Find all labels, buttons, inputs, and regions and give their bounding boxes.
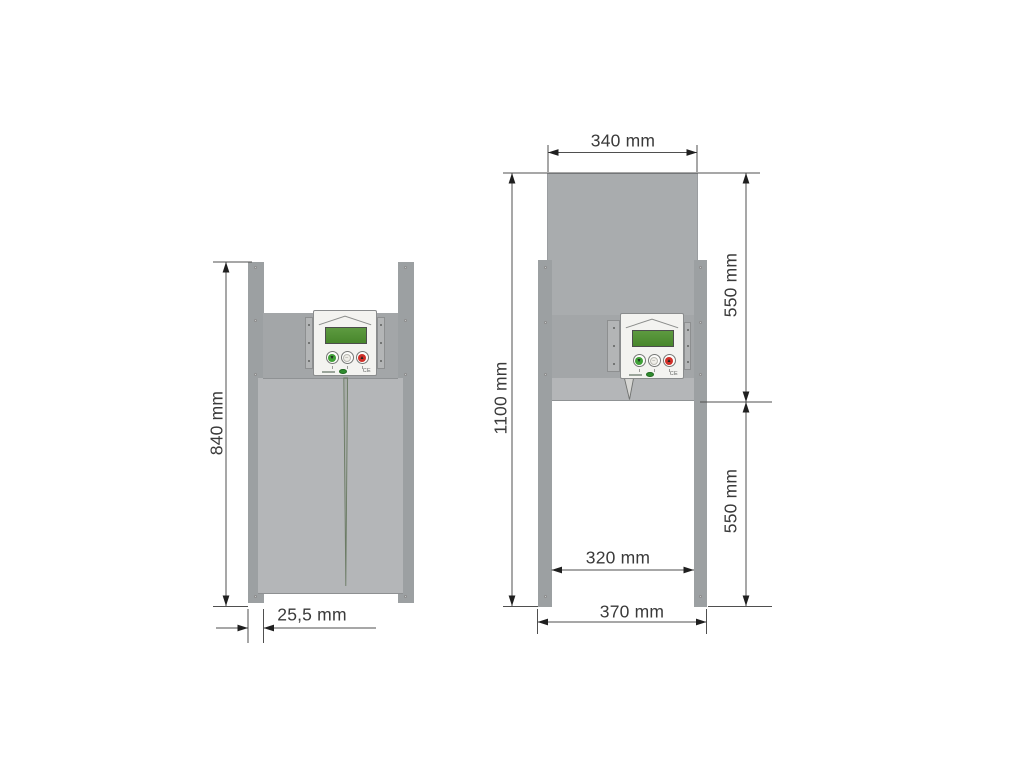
diagram-canvas: ▼ – ▲ CE <box>0 0 1024 768</box>
screw-icon <box>254 595 257 598</box>
brand-text <box>322 371 335 373</box>
ce-mark: CE <box>670 371 678 377</box>
door-bottom-edge <box>552 378 694 401</box>
button-down: ▼ <box>633 354 646 367</box>
door-panel-closed <box>258 378 403 594</box>
brand-text <box>629 374 642 376</box>
dim-label-rail-width: 25,5 mm <box>277 605 346 626</box>
screw-icon <box>699 373 702 376</box>
dim-label-outer-width: 370 mm <box>600 602 664 623</box>
button-stop: – <box>341 351 354 364</box>
screw-icon <box>544 321 547 324</box>
control-unit: ▼ – ▲ CE <box>607 313 691 379</box>
dim-label-upper-section: 550 mm <box>721 253 742 317</box>
up-arrow-icon: ▲ <box>359 355 364 360</box>
brand-logo-icon <box>339 369 347 375</box>
button-up: ▲ <box>356 351 369 364</box>
dim-label-opening-width: 320 mm <box>586 548 650 569</box>
screw-icon <box>699 321 702 324</box>
up-arrow-icon: ▲ <box>666 358 671 363</box>
guide-rail-left <box>538 260 552 607</box>
roof-outline-icon <box>314 313 376 327</box>
control-unit-face: ▼ – ▲ CE <box>313 310 377 376</box>
stop-icon: – <box>653 358 656 363</box>
guide-rail-right <box>694 260 708 607</box>
door-strap <box>0 0 1024 768</box>
dim-label-total-height: 1100 mm <box>491 361 512 434</box>
screw-icon <box>404 373 407 376</box>
screw-icon <box>404 319 407 322</box>
button-up: ▲ <box>663 354 676 367</box>
dimension-lines <box>0 0 1024 768</box>
dim-label-lower-section: 550 mm <box>721 469 742 533</box>
ce-mark: CE <box>363 368 371 374</box>
screw-icon <box>699 266 702 269</box>
button-stop: – <box>648 354 661 367</box>
screw-icon <box>404 266 407 269</box>
screw-icon <box>544 266 547 269</box>
brand-logo-icon <box>646 372 654 378</box>
mounting-flange-right <box>684 322 691 370</box>
screw-icon <box>404 595 407 598</box>
down-arrow-icon: ▼ <box>636 358 641 363</box>
dim-label-height-closed: 840 mm <box>207 391 228 455</box>
screw-icon <box>254 373 257 376</box>
dim-label-door-width: 340 mm <box>591 131 655 152</box>
screw-icon <box>254 266 257 269</box>
mounting-flange-right <box>377 317 385 369</box>
control-unit-face: ▼ – ▲ CE <box>620 313 684 379</box>
button-down: ▼ <box>326 351 339 364</box>
roof-outline-icon <box>621 316 683 330</box>
lcd-display <box>325 327 367 344</box>
mounting-flange-left <box>607 320 620 372</box>
lcd-display <box>632 330 674 347</box>
stop-icon: – <box>346 355 349 360</box>
screw-icon <box>254 319 257 322</box>
pull-cord <box>0 0 1024 768</box>
down-arrow-icon: ▼ <box>329 355 334 360</box>
control-unit: ▼ – ▲ CE <box>305 310 385 377</box>
mounting-flange-left <box>305 317 313 369</box>
screw-icon <box>544 373 547 376</box>
screw-icon <box>699 595 702 598</box>
screw-icon <box>544 595 547 598</box>
